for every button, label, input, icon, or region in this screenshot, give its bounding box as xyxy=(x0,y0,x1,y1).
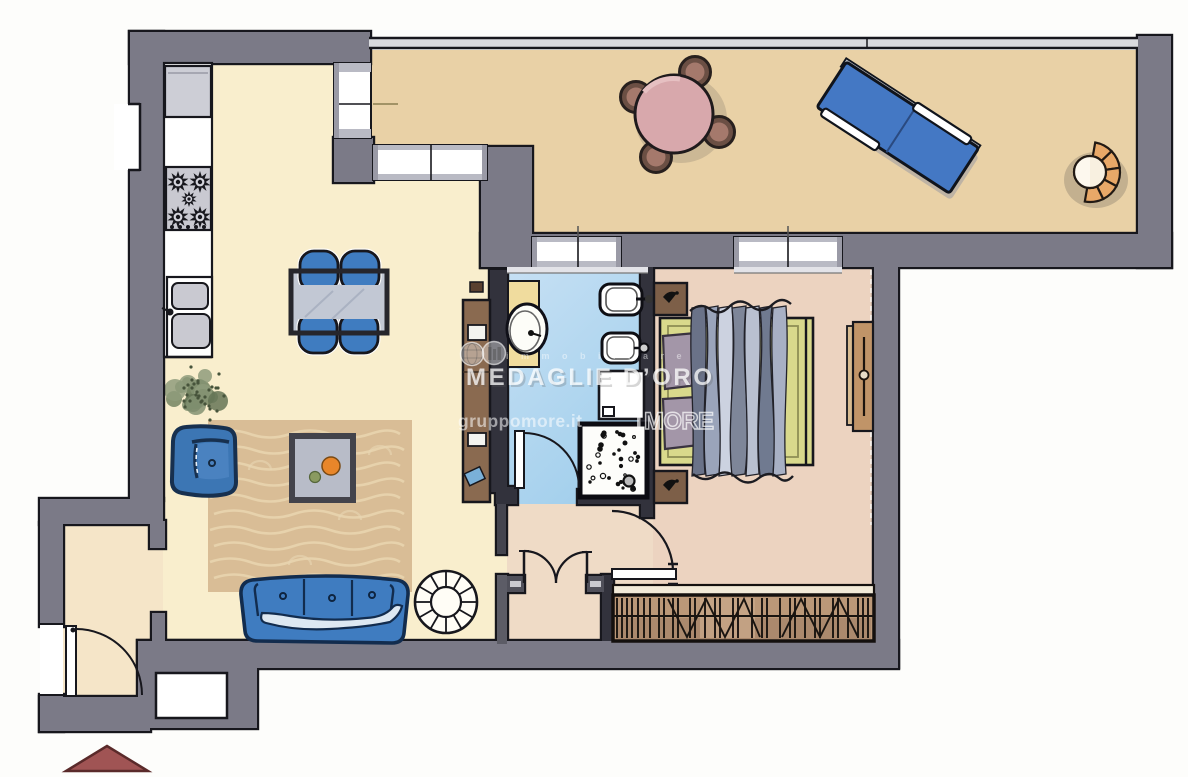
svg-text:gruppomore.it: gruppomore.it xyxy=(458,411,582,431)
svg-text:MORE: MORE xyxy=(644,408,714,435)
svg-text:immobiliare: immobiliare xyxy=(506,351,694,361)
svg-text:MEDAGLIE D’ORO: MEDAGLIE D’ORO xyxy=(466,364,712,391)
